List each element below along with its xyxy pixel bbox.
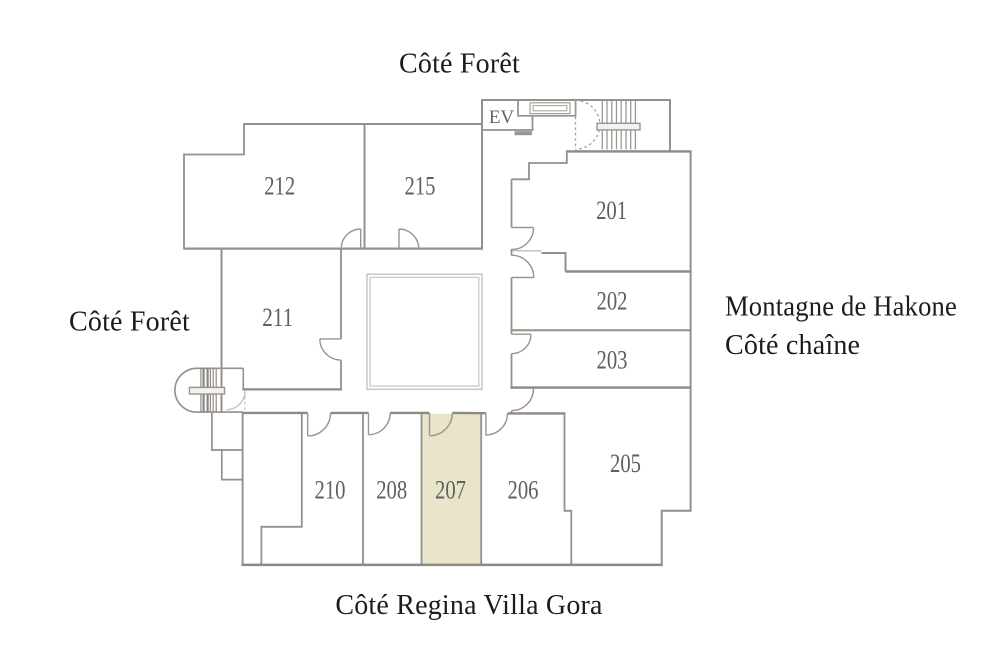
svg-text:203: 203 [597,346,628,375]
svg-text:Montagne de Hakone: Montagne de Hakone [725,291,957,322]
svg-text:208: 208 [376,476,407,505]
svg-text:201: 201 [596,196,627,225]
svg-text:205: 205 [610,449,641,478]
svg-text:Côté Regina Villa Gora: Côté Regina Villa Gora [335,590,603,621]
svg-text:215: 215 [405,172,436,201]
svg-text:212: 212 [264,172,295,201]
svg-text:210: 210 [315,476,346,505]
svg-text:202: 202 [597,287,628,316]
svg-text:206: 206 [508,476,539,505]
svg-text:Côté Forêt: Côté Forêt [69,307,190,338]
svg-text:Côté chaîne: Côté chaîne [725,330,860,361]
svg-text:211: 211 [262,303,293,332]
svg-text:Côté Forêt: Côté Forêt [399,48,520,79]
svg-text:207: 207 [435,476,466,505]
svg-text:EV: EV [489,107,515,128]
